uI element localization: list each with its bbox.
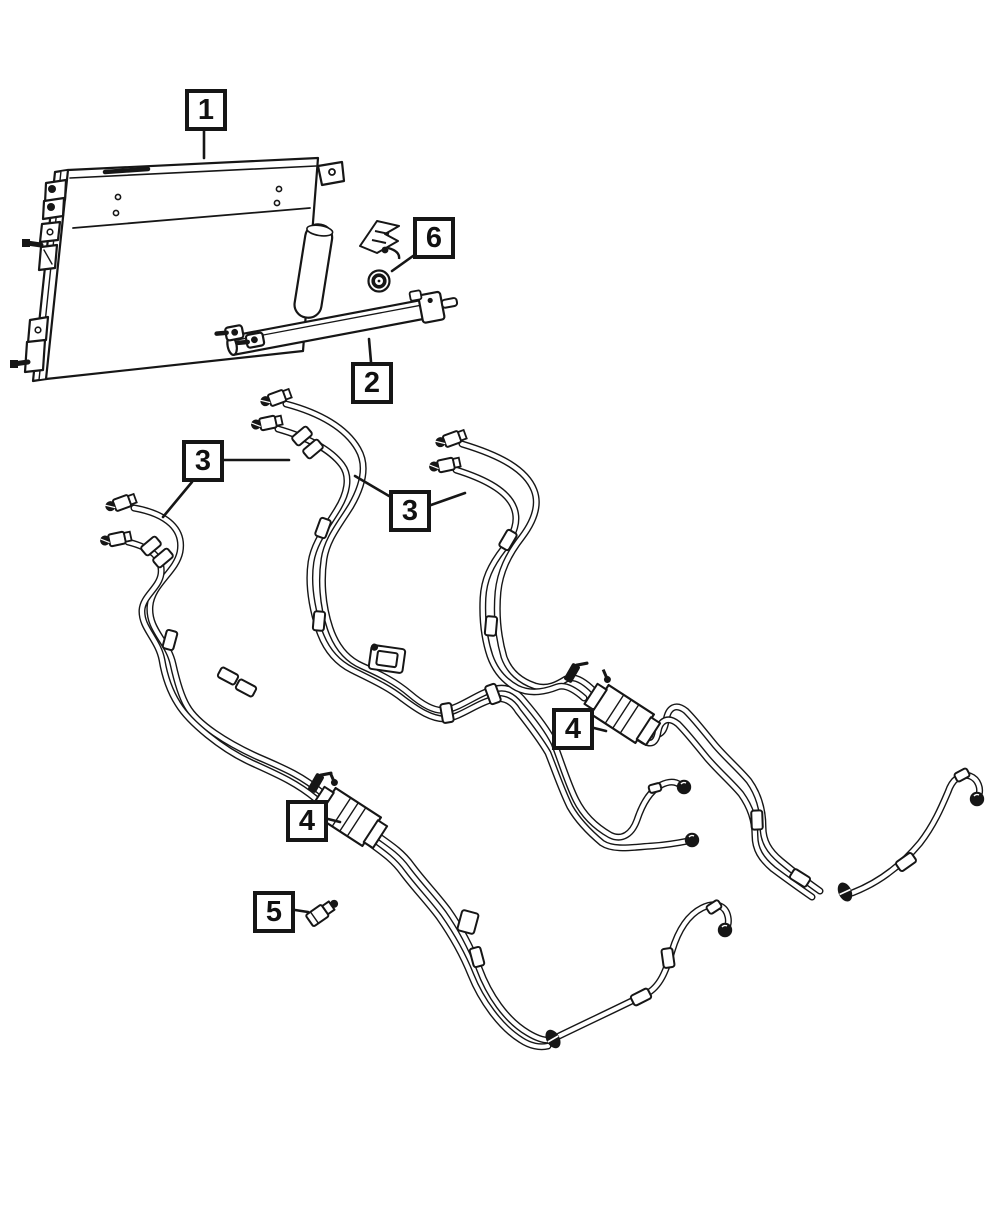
tube-v-branch-bore [559,905,728,1036]
callout-5-box[interactable]: 5 [253,891,295,933]
tube-collar [140,536,162,557]
callout-1-label: 1 [198,96,214,125]
callout-6-leader [392,256,413,271]
tube-collar [706,899,723,914]
callout-5-leader [295,910,308,912]
callout-3a-box[interactable]: 3 [182,440,224,482]
callout-4b-label: 4 [299,807,315,836]
tube-collar [661,948,675,968]
tube-lower-run-b-bore [364,839,548,1047]
callout-3a-label: 3 [195,447,211,476]
tube-collar [313,611,326,631]
grommet [369,271,390,292]
tube-right-run-b [638,720,812,897]
hose-right-b-bore [456,470,584,698]
callout-5-label: 5 [266,898,282,927]
callout-2-label: 2 [364,369,380,398]
retainer-clip [360,221,399,259]
tube-collar [751,810,763,829]
callout-3a-leader [163,482,192,517]
callout-4b-box[interactable]: 4 [286,800,328,842]
callout-6-label: 6 [426,224,442,253]
callout-4a-leader [594,728,606,731]
callout-2-leader [369,339,371,362]
callout-6-box[interactable]: 6 [413,217,455,259]
cooler-bracket-middle [22,222,60,270]
tube-right-end-bore [852,775,980,893]
hose-right-b [456,470,584,698]
tube-collar [457,910,479,935]
tube-right-run-a [643,707,820,891]
connector-fitting [306,896,342,927]
hose-p-clamp [368,643,406,673]
tube-collar [895,852,917,872]
callout-2-box[interactable]: 2 [351,362,393,404]
diagram-line-art [0,0,1000,1214]
oil-cooler [10,158,344,381]
tube-collar [440,703,454,724]
callout-4a-box[interactable]: 4 [552,708,594,750]
tube-collar [162,629,178,650]
tube-right-run-b-bore [638,720,812,897]
tube-v-branch [559,905,728,1036]
callout-3b-label: 3 [402,497,418,526]
callout-3b-leader [431,493,465,505]
tube-collar [217,667,239,686]
tube-collar [485,616,498,636]
tube-right-run-a-bore [643,707,820,891]
tube-right-end [852,775,980,893]
cooler-bracket-top [43,180,66,219]
parts-diagram-canvas: 16233445 [0,0,1000,1214]
cooler-bracket-lower [10,317,48,372]
hose-end-fitting [99,530,132,548]
tube-collar [469,946,485,967]
hose-end-fitting [104,493,137,515]
callout-3b-box[interactable]: 3 [389,490,431,532]
tube-collar [630,988,652,1006]
tube-collar [235,679,257,698]
tube-collar [648,783,662,794]
callout-1-box[interactable]: 1 [185,89,227,131]
tube-collar [954,768,971,783]
callout-4a-label: 4 [565,715,581,744]
